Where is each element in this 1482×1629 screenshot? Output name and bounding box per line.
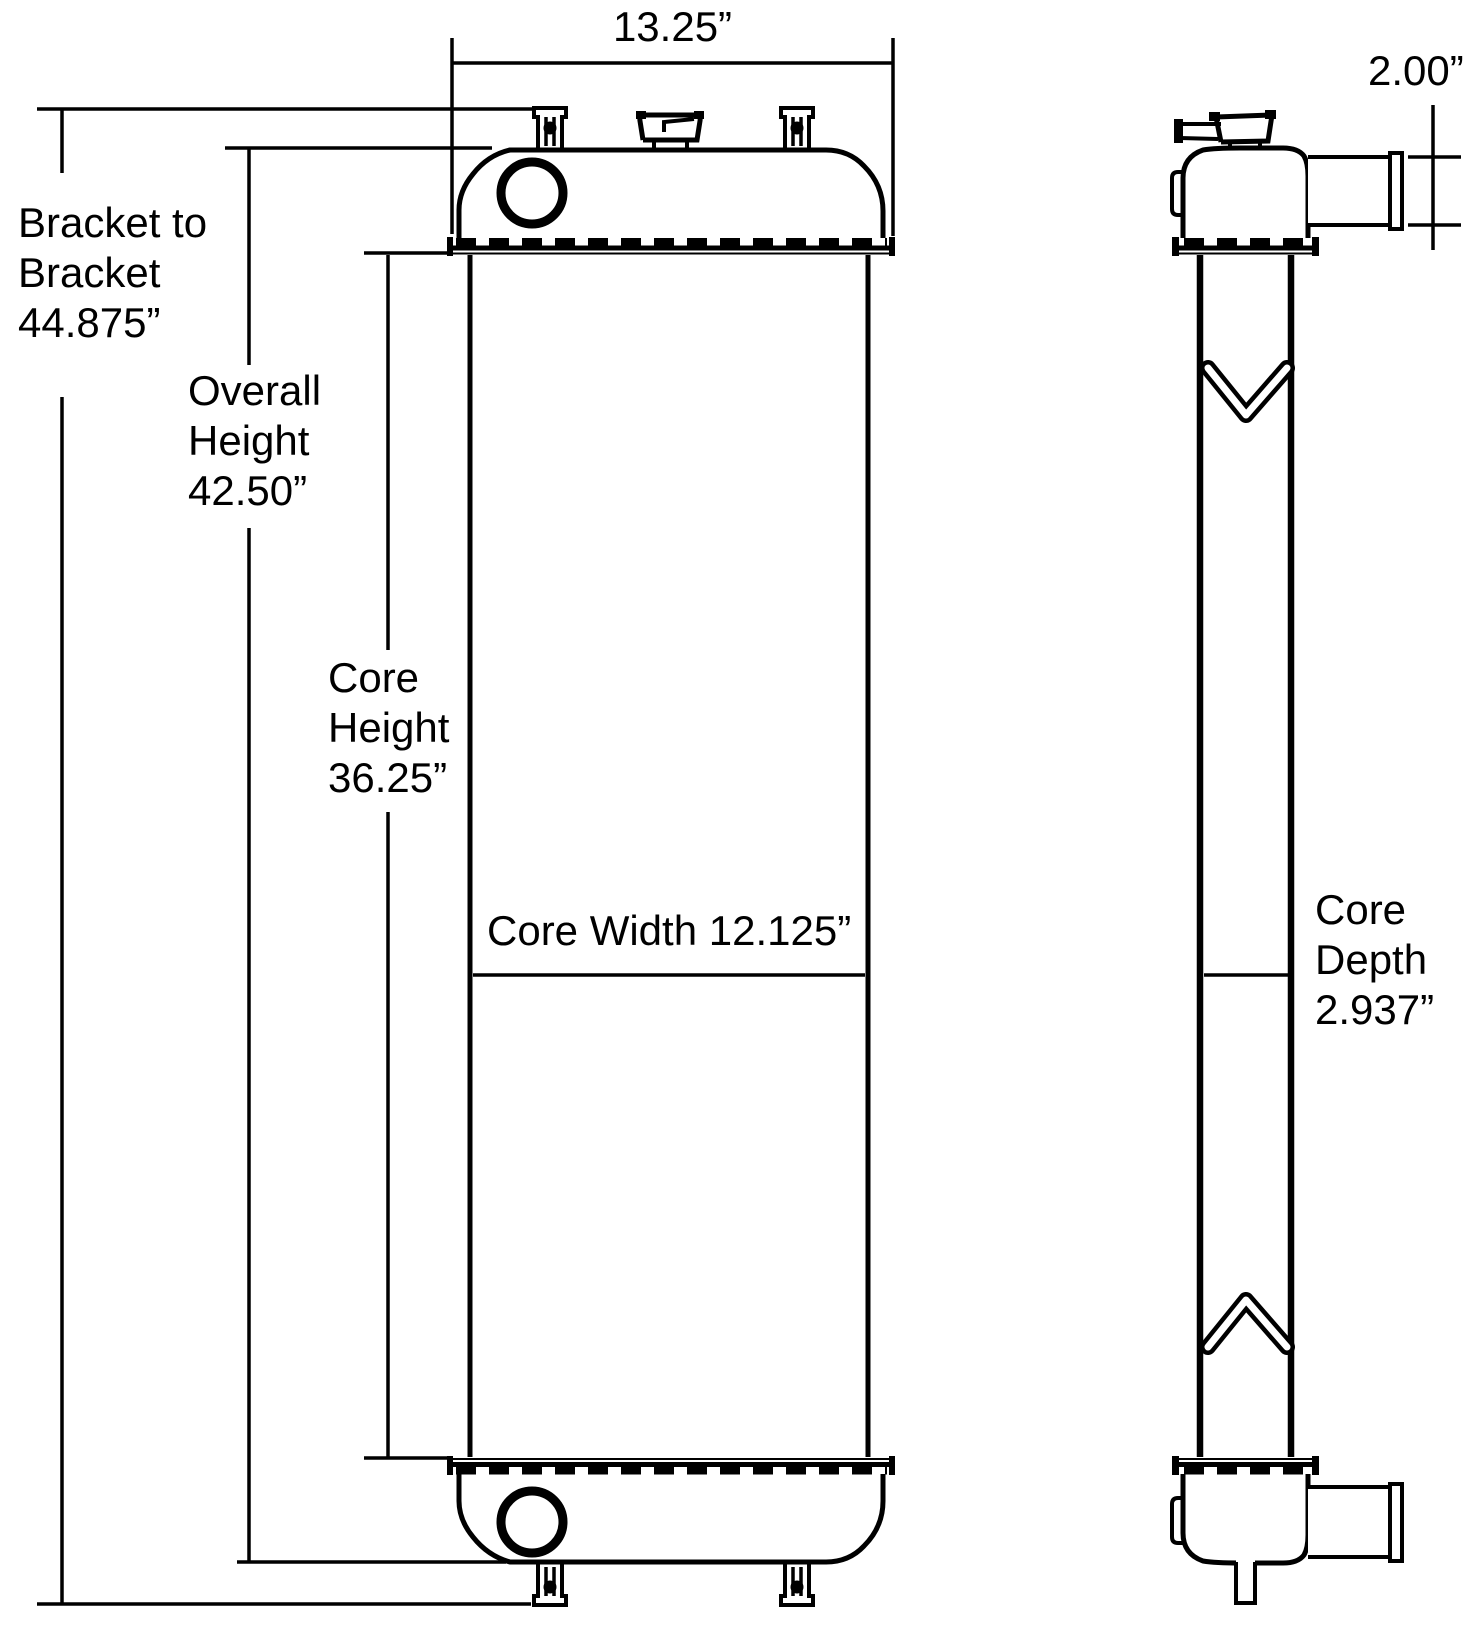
side-bottom-header bbox=[1172, 1456, 1319, 1475]
dim-label-core-width: Core Width 12.125” bbox=[487, 906, 851, 956]
overall-height-dim bbox=[225, 148, 506, 1562]
front-outlet-port bbox=[501, 1491, 563, 1553]
front-top-bracket-left bbox=[534, 108, 566, 150]
port-diameter-dim bbox=[1408, 105, 1461, 250]
side-top-tank-outline bbox=[1183, 148, 1308, 238]
bracket-hole bbox=[791, 122, 804, 135]
dim-label-core-height: Core Height 36.25” bbox=[328, 653, 449, 803]
break-mark-bottom bbox=[1208, 1300, 1287, 1347]
dim-label-line: Overall bbox=[188, 366, 321, 416]
dim-label-line: 44.875” bbox=[18, 298, 207, 348]
dim-label-line: Depth bbox=[1315, 935, 1434, 985]
overflow-tube bbox=[1174, 119, 1221, 143]
dim-label-line: Height bbox=[328, 703, 449, 753]
dim-label-line: Core bbox=[328, 653, 449, 703]
dim-label-core-depth: Core Depth 2.937” bbox=[1315, 885, 1434, 1035]
front-bottom-bracket-left bbox=[534, 1563, 566, 1605]
bracket-hole bbox=[791, 1581, 804, 1594]
pipe-end-bead bbox=[1390, 1484, 1402, 1561]
side-bottom-pipe bbox=[1308, 1484, 1402, 1561]
dim-label-line: 36.25” bbox=[328, 753, 449, 803]
front-inlet-port bbox=[501, 162, 563, 224]
dim-label-line: Bracket bbox=[18, 248, 207, 298]
dim-label-line: 2.937” bbox=[1315, 985, 1434, 1035]
radiator-dimensional-drawing: 13.25” Bracket to Bracket 44.875” Overal… bbox=[0, 0, 1482, 1629]
front-view bbox=[447, 108, 895, 1605]
front-top-bracket-right bbox=[781, 108, 813, 150]
dim-label-line: Bracket to bbox=[18, 198, 207, 248]
break-mark-top bbox=[1208, 368, 1287, 415]
dim-label-line: Core bbox=[1315, 885, 1434, 935]
bracket-hole bbox=[544, 1581, 557, 1594]
drawing-linework bbox=[0, 0, 1482, 1629]
dim-label-line: 42.50” bbox=[188, 466, 321, 516]
bracket-hole bbox=[544, 122, 557, 135]
cap-lever bbox=[664, 119, 694, 132]
front-bottom-header bbox=[447, 1456, 895, 1475]
front-filler-cap bbox=[636, 111, 704, 151]
dim-label-port-diameter: 2.00” bbox=[1368, 46, 1464, 96]
side-bottom-tank-outline bbox=[1183, 1474, 1308, 1563]
core-height-dim bbox=[364, 253, 449, 1458]
side-top-pipe bbox=[1308, 153, 1402, 229]
front-top-header bbox=[447, 237, 895, 256]
drain-fitting bbox=[1236, 1558, 1255, 1603]
front-bottom-bracket-right bbox=[781, 1563, 813, 1605]
dim-label-bracket-to-bracket: Bracket to Bracket 44.875” bbox=[18, 198, 207, 348]
pipe-end-bead bbox=[1390, 153, 1402, 229]
side-top-header bbox=[1172, 237, 1319, 256]
dim-label-line: Height bbox=[188, 416, 321, 466]
side-view bbox=[1172, 105, 1461, 1603]
dim-label-overall-height: Overall Height 42.50” bbox=[188, 366, 321, 516]
dim-label-top-width: 13.25” bbox=[452, 2, 893, 52]
side-filler-cap bbox=[1174, 110, 1276, 150]
